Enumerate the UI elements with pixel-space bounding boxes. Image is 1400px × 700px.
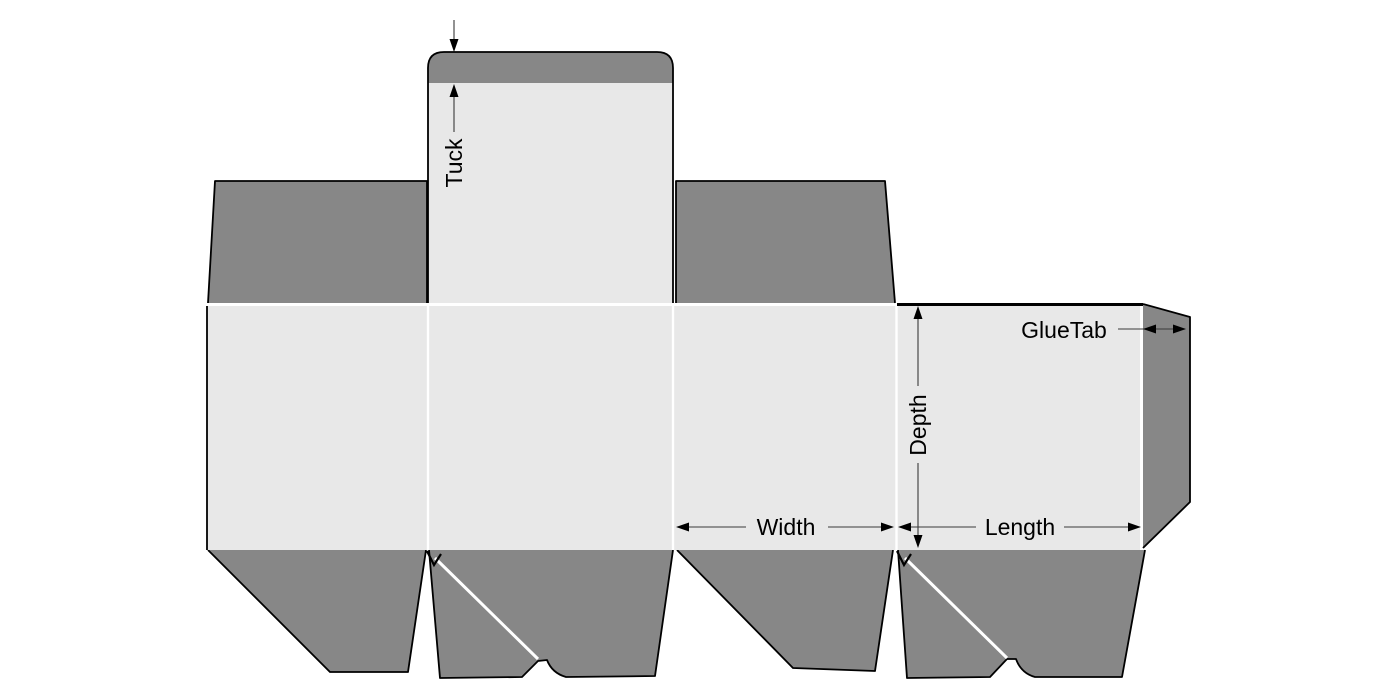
top-flap-left <box>208 181 427 303</box>
bottom-flap-2-lock <box>429 550 673 678</box>
tuck-panel <box>428 83 673 303</box>
depth-label: Depth <box>905 394 931 455</box>
top-flap-right <box>676 181 895 303</box>
length-panel-top-edge <box>897 303 1143 306</box>
tuck-label: Tuck <box>441 138 467 187</box>
dieline-diagram: Tuck Depth Width Length GlueTab <box>0 0 1400 700</box>
dieline-canvas: Tuck Depth Width Length GlueTab <box>0 0 1400 700</box>
tuck-flap-top <box>428 52 673 83</box>
bottom-flap-4-lock <box>898 550 1145 678</box>
gluetab-label: GlueTab <box>1021 317 1107 343</box>
width-label: Width <box>757 514 816 540</box>
length-label: Length <box>985 514 1055 540</box>
